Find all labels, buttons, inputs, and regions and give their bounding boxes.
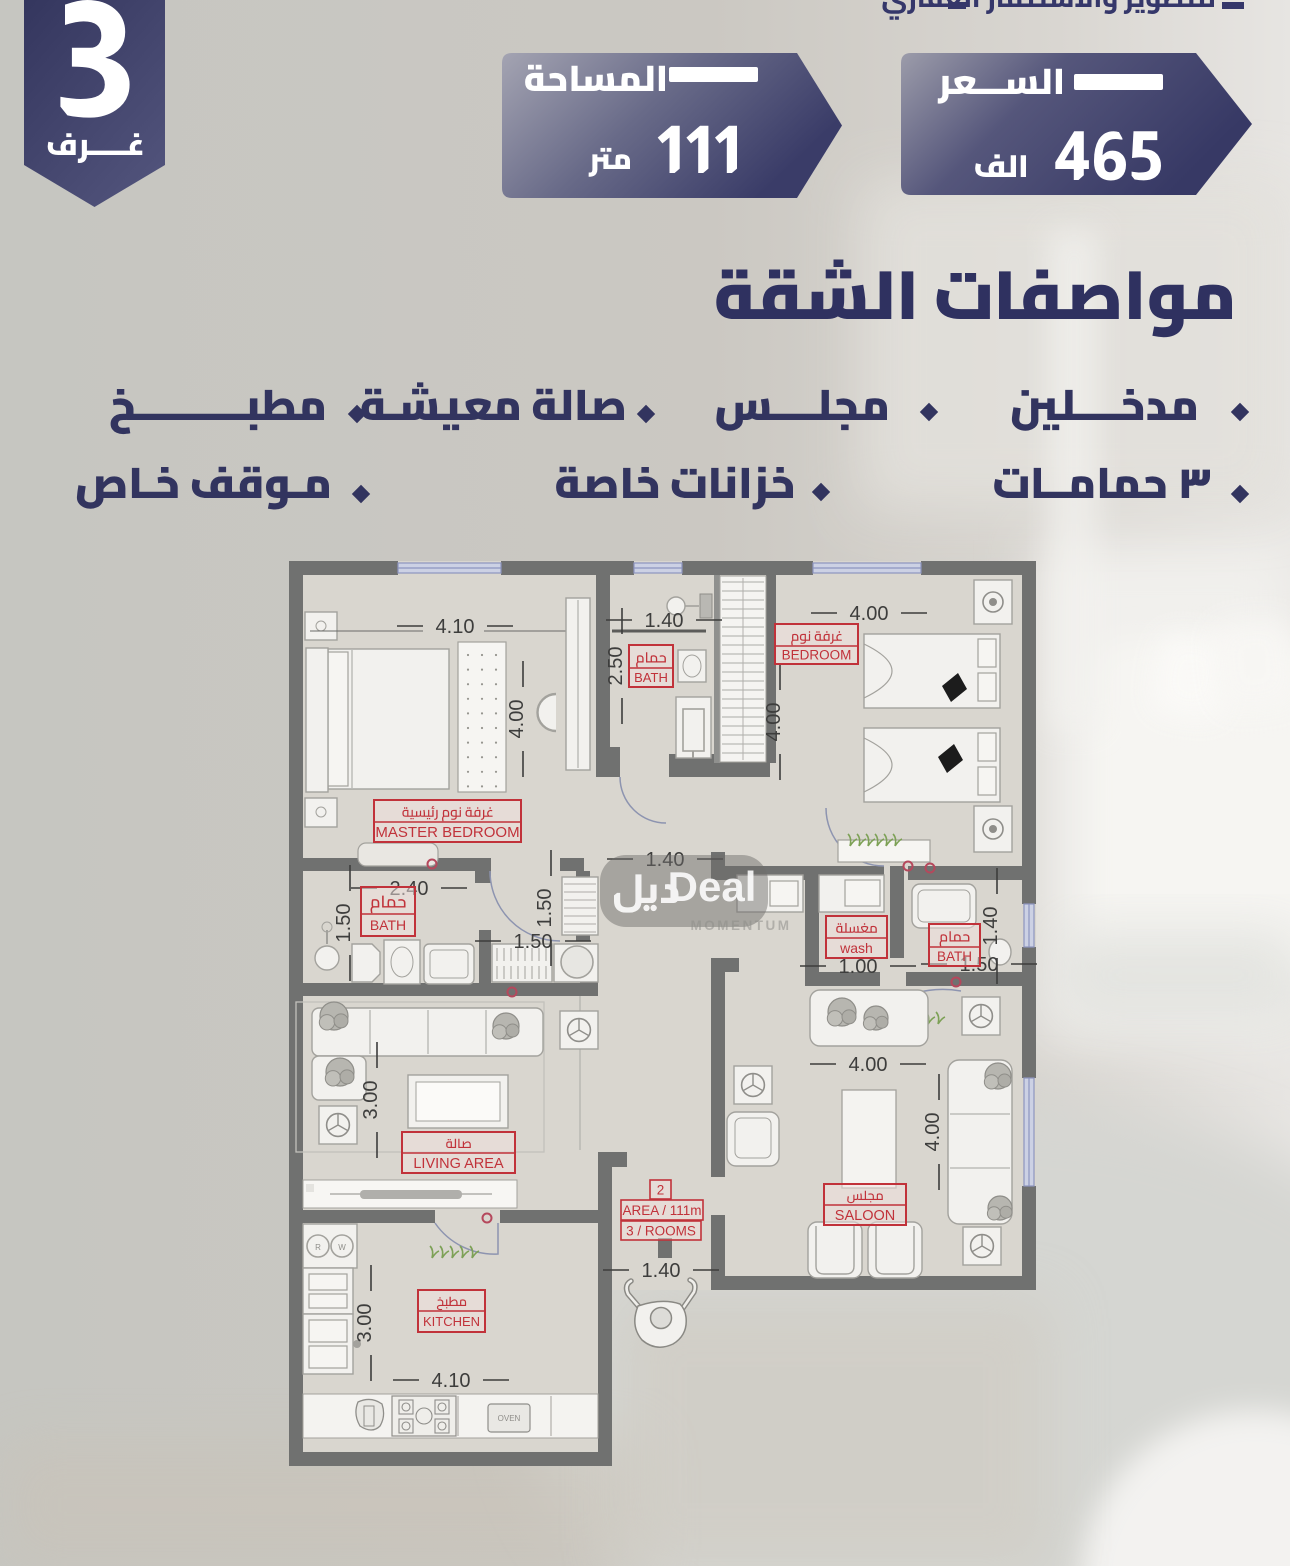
svg-text:1.40: 1.40 bbox=[980, 907, 1002, 946]
svg-text:2: 2 bbox=[657, 1183, 665, 1198]
svg-text:OVEN: OVEN bbox=[498, 1414, 521, 1423]
svg-text:W: W bbox=[338, 1243, 346, 1252]
svg-text:2.50: 2.50 bbox=[605, 647, 627, 686]
svg-text:BATH: BATH bbox=[634, 670, 668, 685]
svg-text:wash: wash bbox=[839, 940, 873, 956]
svg-text:KITCHEN: KITCHEN bbox=[423, 1314, 480, 1329]
svg-text:1.50: 1.50 bbox=[333, 904, 355, 943]
svg-text:BATH: BATH bbox=[370, 917, 406, 933]
svg-text:3.00: 3.00 bbox=[354, 1304, 376, 1343]
svg-text:4.00: 4.00 bbox=[850, 603, 889, 625]
svg-text:1.00: 1.00 bbox=[839, 956, 878, 978]
svg-text:1.40: 1.40 bbox=[642, 1260, 681, 1282]
svg-text:BATH: BATH bbox=[937, 949, 972, 964]
svg-text:1.50: 1.50 bbox=[534, 889, 556, 928]
svg-text:4.00: 4.00 bbox=[506, 700, 528, 739]
svg-text:3 / ROOMS: 3 / ROOMS bbox=[626, 1224, 696, 1239]
svg-text:LIVING AREA: LIVING AREA bbox=[413, 1156, 504, 1172]
svg-text:AREA / 111m: AREA / 111m bbox=[622, 1203, 701, 1218]
svg-text:Deal: Deal bbox=[668, 863, 757, 910]
svg-text:R: R bbox=[315, 1243, 321, 1252]
svg-text:1.40: 1.40 bbox=[645, 610, 684, 632]
svg-text:4.10: 4.10 bbox=[432, 1370, 471, 1392]
svg-text:4.00: 4.00 bbox=[763, 703, 785, 742]
svg-text:MOMENTUM: MOMENTUM bbox=[691, 918, 792, 933]
svg-text:MASTER BEDROOM: MASTER BEDROOM bbox=[375, 824, 519, 841]
svg-text:4.00: 4.00 bbox=[849, 1054, 888, 1076]
svg-text:BEDROOM: BEDROOM bbox=[782, 648, 852, 663]
svg-text:SALOON: SALOON bbox=[835, 1208, 895, 1224]
svg-text:4.10: 4.10 bbox=[436, 616, 475, 638]
svg-text:3.00: 3.00 bbox=[360, 1081, 382, 1120]
svg-text:1.50: 1.50 bbox=[514, 931, 553, 953]
svg-text:4.00: 4.00 bbox=[922, 1113, 944, 1152]
